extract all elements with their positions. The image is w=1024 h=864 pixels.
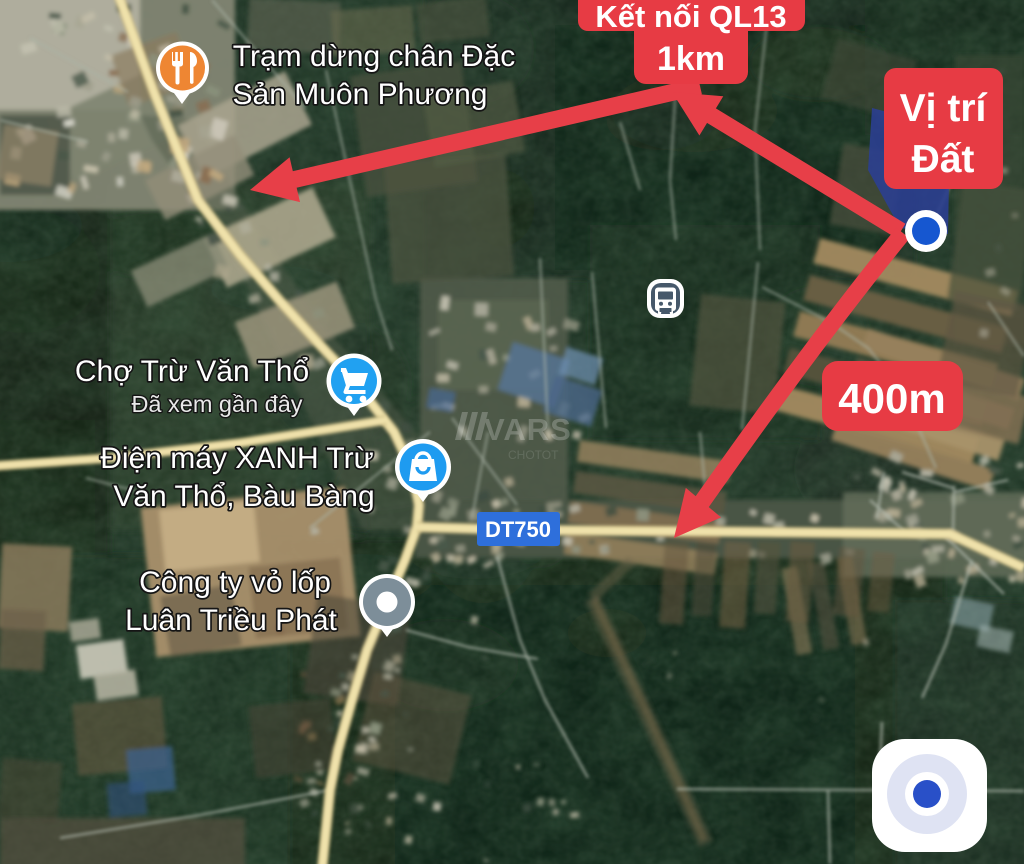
svg-text:1km: 1km [657,40,725,78]
svg-text:Sản Muôn Phương: Sản Muôn Phương [233,78,488,111]
svg-text:Công ty vỏ lốp: Công ty vỏ lốp [139,566,331,599]
svg-text:Đất: Đất [912,138,975,181]
svg-text:CHOTOT: CHOTOT [508,448,559,462]
svg-text:Đã xem gần đây: Đã xem gần đây [131,391,302,417]
svg-text:400m: 400m [838,375,945,422]
svg-text:Chợ Trừ Văn Thổ: Chợ Trừ Văn Thổ [75,355,309,388]
svg-text:Vị trí: Vị trí [900,87,988,130]
svg-text:Luân Triều Phát: Luân Triều Phát [125,604,337,637]
svg-text:Kết nối QL13: Kết nối QL13 [595,0,786,34]
svg-text:Văn Thổ, Bàu Bàng: Văn Thổ, Bàu Bàng [113,480,374,513]
svg-text:Điện máy XANH Trừ: Điện máy XANH Trừ [100,442,373,475]
svg-text:DT750: DT750 [485,517,551,542]
svg-text:VARS: VARS [484,412,572,447]
svg-text:Trạm dừng chân Đặc: Trạm dừng chân Đặc [233,40,515,73]
